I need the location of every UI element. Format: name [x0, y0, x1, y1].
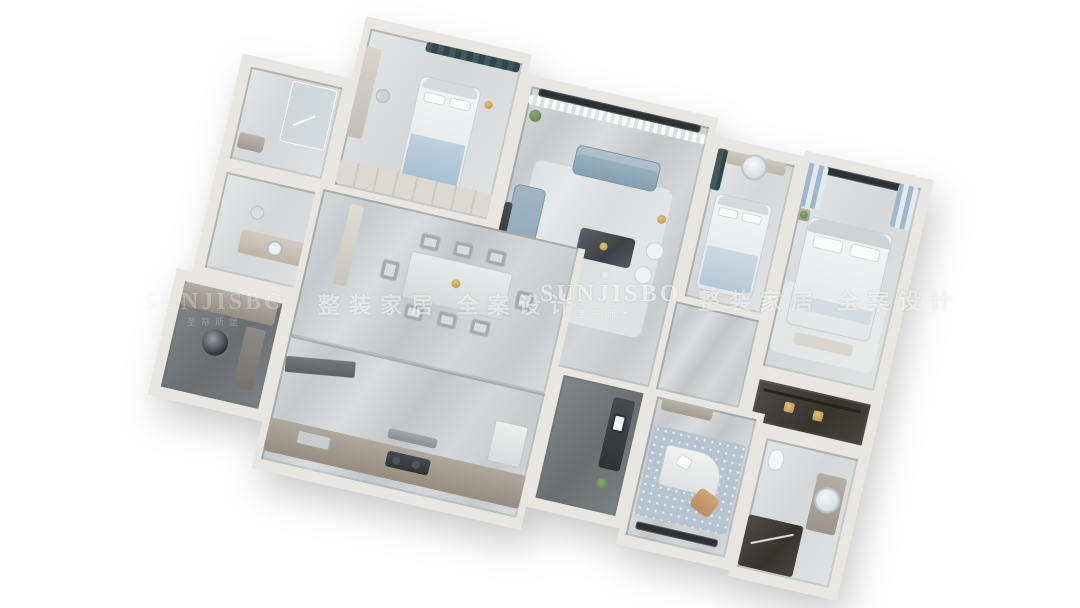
pillow: [448, 97, 472, 112]
shower-glass-enclosure: [279, 80, 338, 151]
dark-curtain: [709, 148, 728, 191]
washing-machine: [197, 325, 233, 361]
brand-chinese-name: 圣蒂斯堡: [140, 315, 290, 328]
pillow: [423, 91, 447, 106]
plant: [528, 109, 542, 123]
brand-name: SUNJISBO: [140, 290, 290, 315]
gold-storage-box: [783, 401, 795, 413]
dining-chair: [379, 258, 401, 282]
entry-cabinet: [598, 397, 636, 472]
floorplan-render-scene: ✺ SUNJISBO 圣蒂斯堡 整装家居 全案设计 ✺ SUNJISBO 圣蒂斯…: [0, 0, 1080, 608]
sheer-curtains: [528, 94, 708, 145]
refrigerator: [486, 420, 529, 469]
prep-counter: [285, 356, 356, 378]
dining-chair: [485, 248, 508, 268]
shower-dark-floor: [737, 514, 803, 577]
watermark-slogan-right: 整装家居 全案设计: [698, 284, 961, 316]
sideboard: [332, 204, 364, 287]
plant: [595, 477, 608, 490]
teal-curtains: [425, 42, 521, 73]
bathroom-sink-counter: [236, 132, 265, 153]
dining-chair: [419, 232, 442, 252]
dining-chair: [452, 240, 475, 260]
blue-curtain: [800, 163, 829, 210]
pillow: [741, 212, 763, 225]
storage-shelf: [233, 326, 266, 391]
gold-storage-box: [812, 410, 824, 422]
watermark-brand-left: ✺ SUNJISBO 圣蒂斯堡: [140, 280, 290, 328]
study-cabinet: [660, 398, 713, 421]
brand-name: SUNJISBO: [540, 282, 670, 307]
stool: [249, 204, 266, 221]
watermark-brand-center: ✺ SUNJISBO 圣蒂斯堡: [540, 272, 670, 320]
pillow: [718, 207, 740, 220]
table-lamp: [484, 100, 494, 110]
closet-rod: [763, 388, 861, 413]
toilet: [766, 447, 787, 472]
desk-chair: [374, 88, 391, 105]
dining-chair: [469, 318, 492, 338]
brand-chinese-name: 圣蒂斯堡: [540, 307, 670, 320]
